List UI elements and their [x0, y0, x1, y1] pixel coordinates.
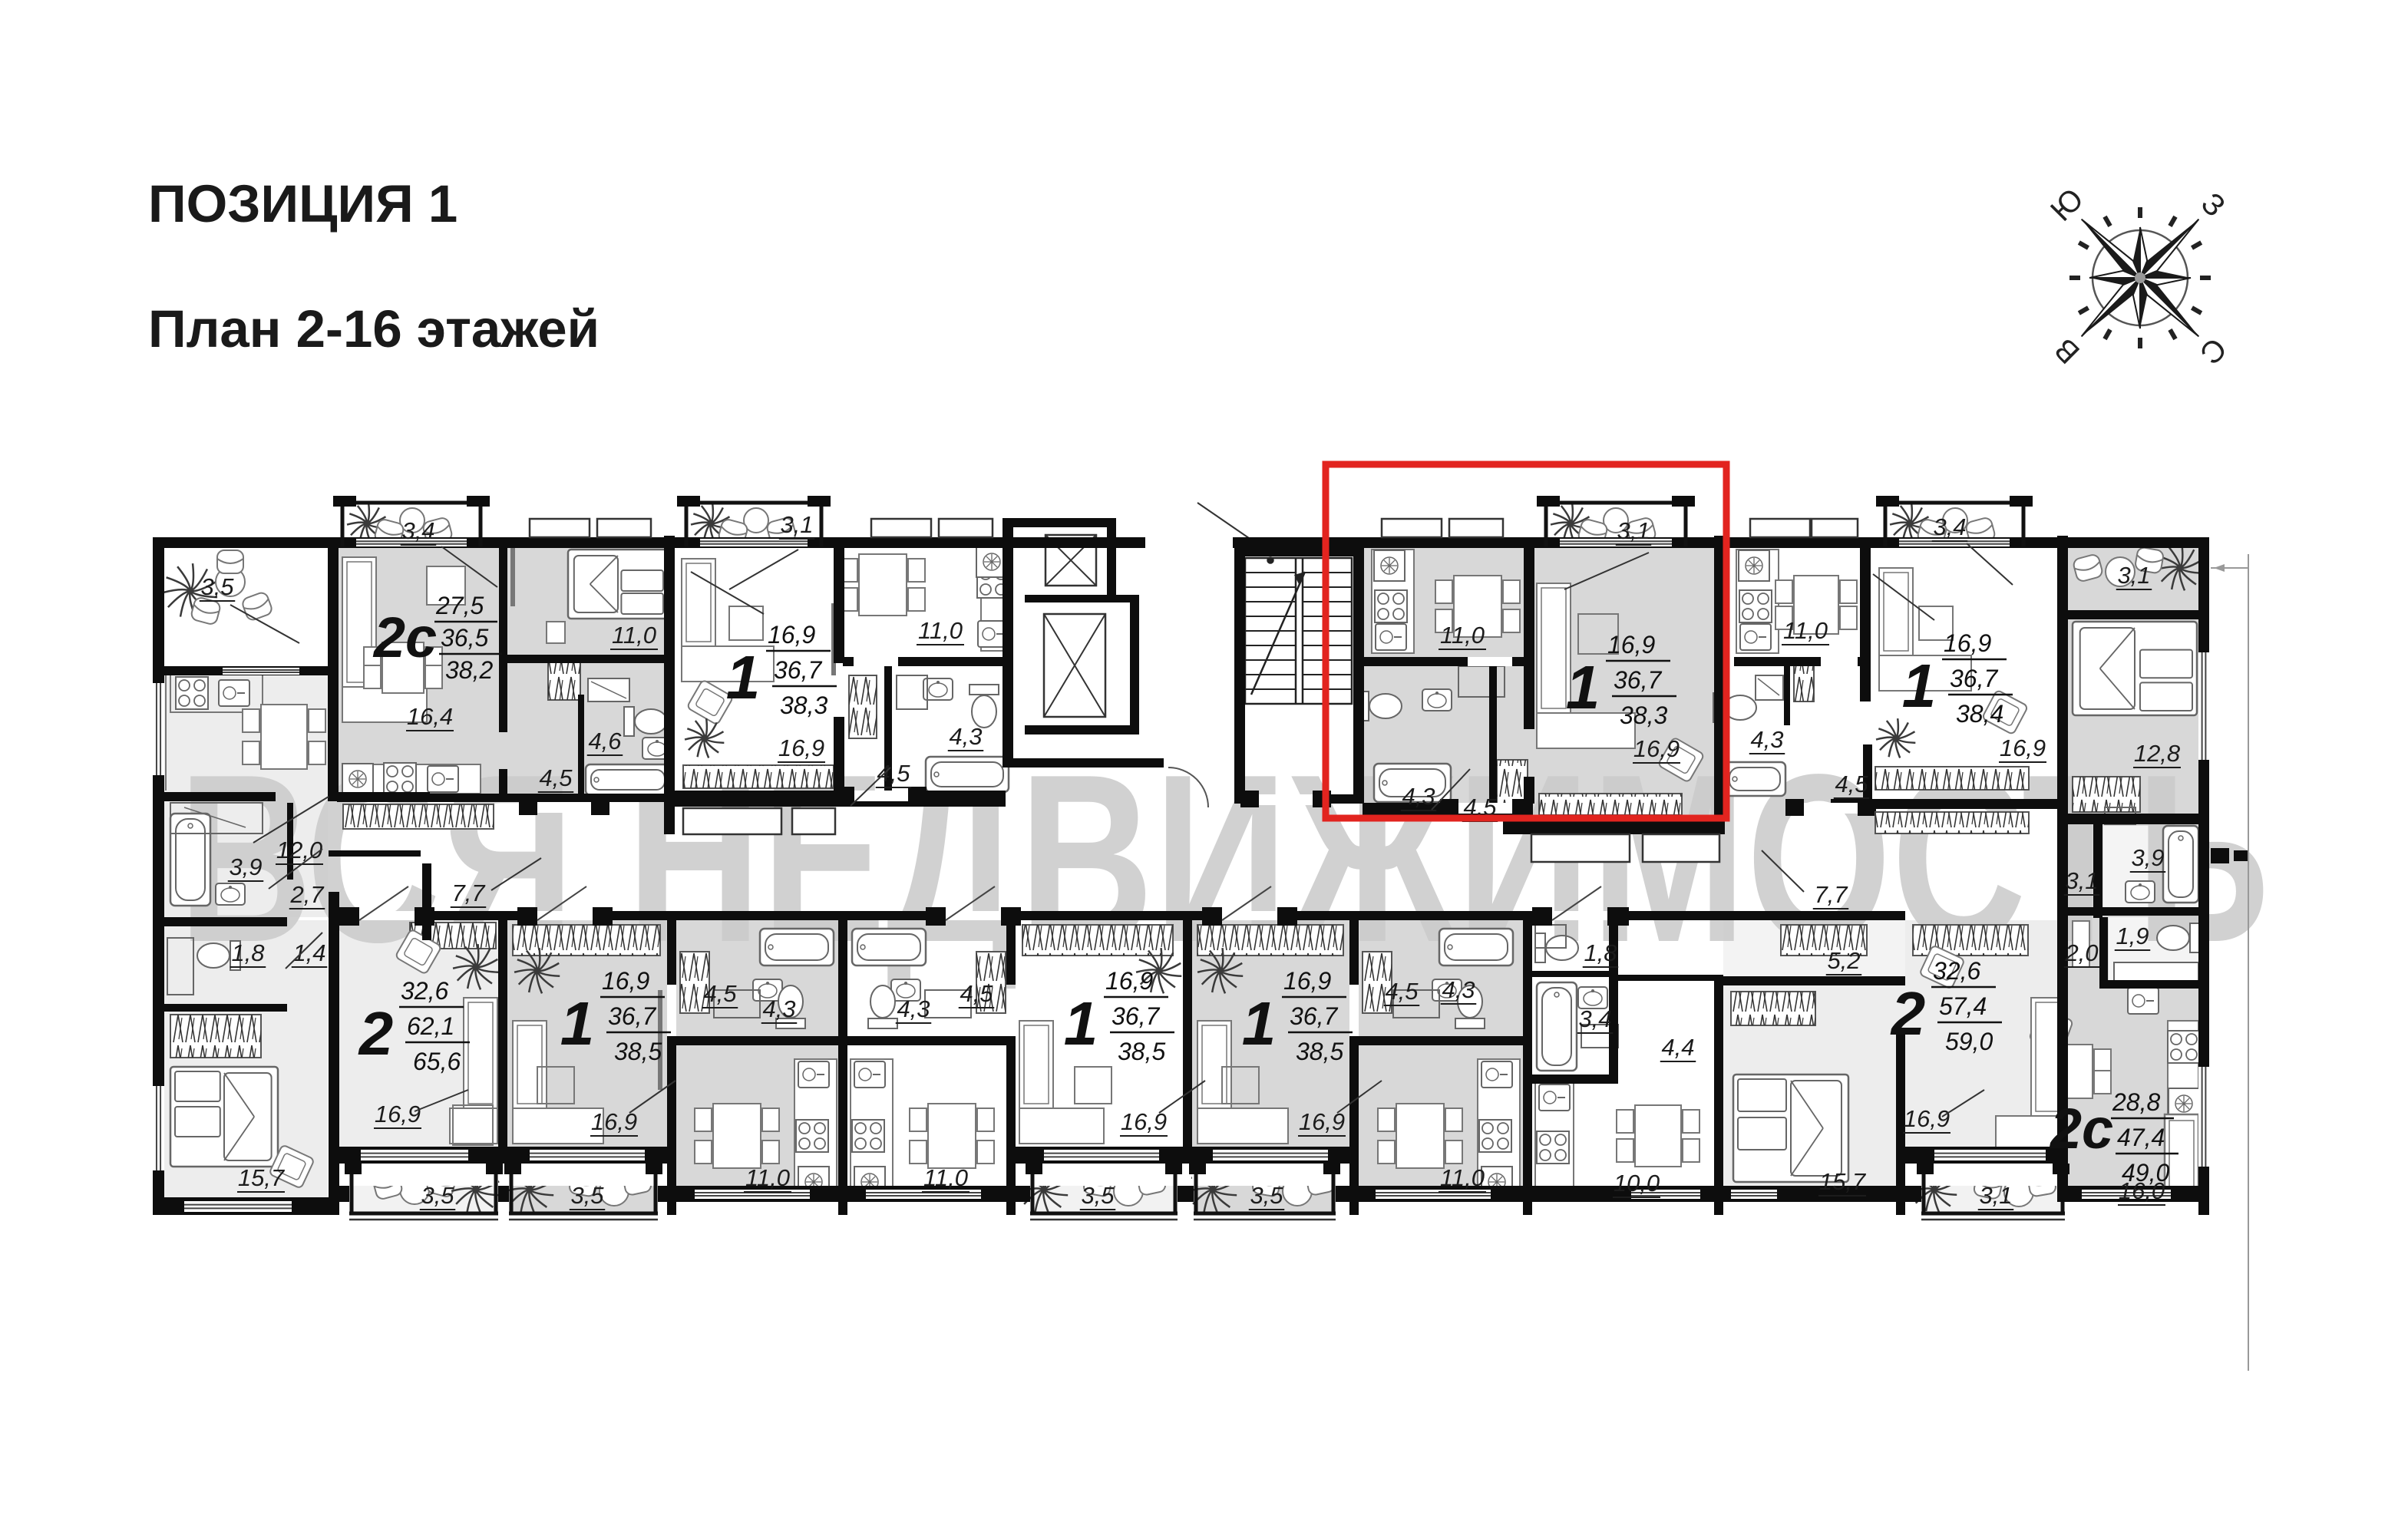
- svg-text:4,5: 4,5: [877, 760, 910, 787]
- svg-text:27,5: 27,5: [435, 592, 484, 619]
- svg-text:4,3: 4,3: [1442, 976, 1475, 1003]
- svg-text:10,0: 10,0: [1614, 1170, 1660, 1197]
- svg-text:16,4: 16,4: [407, 703, 453, 730]
- svg-text:16,9: 16,9: [1633, 735, 1680, 762]
- svg-text:59,0: 59,0: [1945, 1028, 1993, 1055]
- svg-text:4,5: 4,5: [960, 980, 993, 1007]
- svg-text:11,0: 11,0: [1440, 1164, 1485, 1191]
- svg-text:16,9: 16,9: [375, 1101, 421, 1127]
- svg-text:1: 1: [1566, 653, 1600, 721]
- svg-text:3,1: 3,1: [2065, 867, 2098, 894]
- svg-text:4,5: 4,5: [703, 980, 737, 1007]
- svg-text:11,0: 11,0: [1440, 622, 1485, 649]
- svg-text:3,1: 3,1: [1979, 1182, 2012, 1209]
- svg-text:16,9: 16,9: [768, 621, 815, 649]
- svg-text:16,9: 16,9: [2000, 734, 2046, 761]
- svg-text:16,9: 16,9: [778, 734, 824, 761]
- svg-text:7,7: 7,7: [1814, 881, 1848, 908]
- svg-text:1,8: 1,8: [1584, 939, 1617, 966]
- svg-text:4,5: 4,5: [539, 764, 573, 791]
- svg-text:1: 1: [560, 989, 595, 1058]
- svg-text:3,5: 3,5: [570, 1182, 604, 1209]
- svg-text:1: 1: [1902, 652, 1937, 720]
- svg-text:4,4: 4,4: [1661, 1034, 1694, 1061]
- svg-text:38,5: 38,5: [1118, 1038, 1165, 1065]
- svg-text:7,7: 7,7: [451, 880, 486, 906]
- svg-text:16,9: 16,9: [1904, 1105, 1950, 1132]
- svg-text:38,5: 38,5: [614, 1038, 662, 1065]
- svg-text:4,6: 4,6: [588, 728, 622, 754]
- svg-text:38,5: 38,5: [1296, 1038, 1343, 1065]
- svg-text:38,2: 38,2: [445, 656, 493, 684]
- svg-text:ПОЗИЦИЯ 1: ПОЗИЦИЯ 1: [148, 174, 457, 233]
- svg-text:11,0: 11,0: [923, 1164, 968, 1191]
- svg-text:3,9: 3,9: [229, 853, 262, 880]
- svg-text:3,5: 3,5: [200, 573, 234, 600]
- svg-text:4,5: 4,5: [1835, 771, 1868, 797]
- svg-text:2,0: 2,0: [2064, 939, 2098, 966]
- svg-text:16,9: 16,9: [1607, 631, 1655, 659]
- svg-text:3,1: 3,1: [1617, 517, 1650, 544]
- svg-text:1,4: 1,4: [292, 939, 325, 966]
- svg-text:3,1: 3,1: [780, 511, 813, 538]
- svg-text:2: 2: [358, 999, 394, 1068]
- svg-text:4,3: 4,3: [762, 995, 795, 1022]
- svg-text:2с: 2с: [372, 606, 437, 669]
- svg-text:4,5: 4,5: [1385, 978, 1419, 1005]
- svg-text:38,3: 38,3: [1620, 701, 1667, 729]
- svg-text:1,9: 1,9: [2116, 923, 2149, 949]
- svg-text:36,7: 36,7: [1614, 666, 1662, 694]
- svg-text:2,7: 2,7: [289, 881, 325, 908]
- svg-text:15,7: 15,7: [238, 1164, 286, 1191]
- svg-text:11,0: 11,0: [1783, 617, 1828, 644]
- svg-text:36,7: 36,7: [608, 1002, 656, 1030]
- svg-text:32,6: 32,6: [1933, 957, 1980, 985]
- svg-text:1: 1: [726, 643, 761, 711]
- svg-text:57,4: 57,4: [1939, 992, 1987, 1020]
- svg-text:4,3: 4,3: [897, 995, 930, 1022]
- svg-text:2с: 2с: [2049, 1097, 2113, 1160]
- svg-text:38,4: 38,4: [1956, 700, 2003, 728]
- svg-text:3,9: 3,9: [2131, 844, 2164, 871]
- svg-text:12,8: 12,8: [2134, 740, 2181, 767]
- svg-text:32,6: 32,6: [401, 977, 448, 1005]
- svg-text:4,3: 4,3: [949, 723, 982, 750]
- svg-text:4,3: 4,3: [1750, 726, 1783, 753]
- svg-text:1: 1: [1064, 989, 1098, 1058]
- svg-text:План 2-16 этажей: План 2-16 этажей: [148, 299, 600, 358]
- svg-text:36,7: 36,7: [774, 656, 822, 684]
- svg-text:1: 1: [1242, 989, 1277, 1058]
- svg-text:3,1: 3,1: [2117, 562, 2150, 589]
- svg-text:36,7: 36,7: [1950, 665, 1998, 692]
- svg-text:16,9: 16,9: [1283, 967, 1331, 995]
- svg-text:36,7: 36,7: [1290, 1002, 1338, 1030]
- svg-text:3,5: 3,5: [1081, 1182, 1115, 1209]
- svg-text:1,8: 1,8: [231, 939, 265, 966]
- svg-text:12,0: 12,0: [276, 837, 322, 863]
- svg-text:16,9: 16,9: [602, 967, 649, 995]
- svg-text:11,0: 11,0: [918, 617, 963, 644]
- svg-text:3,4: 3,4: [1933, 513, 1966, 540]
- svg-text:36,5: 36,5: [441, 624, 488, 652]
- svg-text:3,5: 3,5: [421, 1182, 454, 1209]
- svg-text:65,6: 65,6: [413, 1048, 461, 1075]
- svg-text:5,2: 5,2: [1827, 947, 1860, 974]
- svg-text:16,9: 16,9: [1105, 967, 1153, 995]
- svg-text:47,4: 47,4: [2117, 1124, 2165, 1151]
- svg-text:28,8: 28,8: [2112, 1088, 2160, 1116]
- svg-text:3,5: 3,5: [1250, 1182, 1283, 1209]
- svg-text:2: 2: [1890, 979, 1926, 1048]
- svg-text:16,9: 16,9: [1944, 629, 1991, 657]
- svg-text:4,3: 4,3: [1402, 783, 1435, 810]
- svg-text:15,7: 15,7: [1819, 1168, 1867, 1195]
- svg-text:38,3: 38,3: [780, 692, 827, 719]
- svg-text:11,0: 11,0: [745, 1164, 790, 1191]
- svg-text:62,1: 62,1: [407, 1012, 454, 1040]
- svg-text:11,0: 11,0: [612, 622, 656, 649]
- svg-text:3,4: 3,4: [1578, 1005, 1611, 1032]
- svg-text:3,4: 3,4: [401, 517, 434, 544]
- svg-text:36,7: 36,7: [1112, 1002, 1160, 1030]
- svg-text:16,0: 16,0: [2119, 1177, 2165, 1204]
